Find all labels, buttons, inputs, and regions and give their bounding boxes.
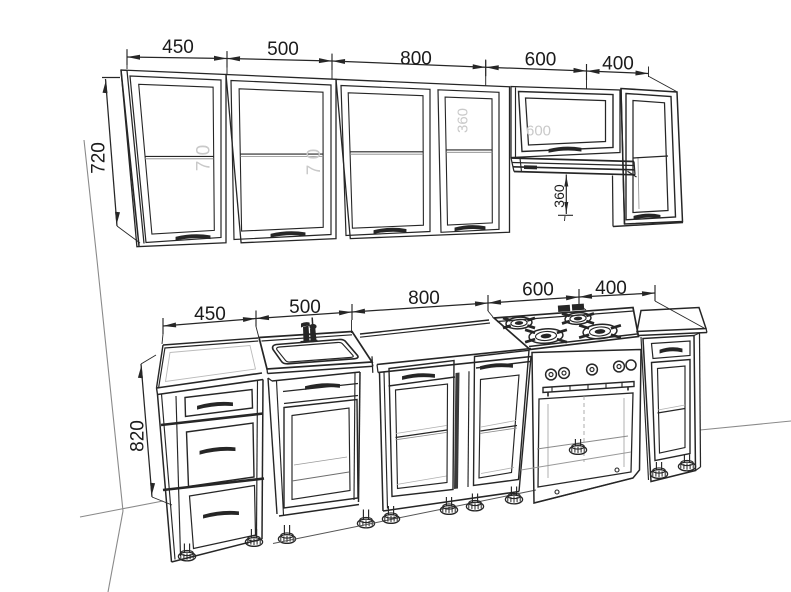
svg-text:600: 600 (526, 123, 551, 140)
svg-text:400: 400 (595, 278, 627, 299)
svg-text:7 0: 7 0 (194, 145, 215, 171)
svg-text:360: 360 (455, 108, 472, 133)
svg-text:7 0: 7 0 (304, 149, 325, 175)
svg-text:500: 500 (267, 39, 299, 60)
svg-text:600: 600 (522, 280, 554, 301)
svg-text:800: 800 (400, 49, 432, 70)
svg-text:800: 800 (408, 288, 440, 309)
svg-text:450: 450 (162, 37, 194, 58)
svg-text:450: 450 (194, 304, 226, 325)
svg-text:600: 600 (525, 50, 557, 71)
svg-text:820: 820 (128, 420, 149, 452)
svg-text:400: 400 (602, 54, 634, 75)
svg-text:720: 720 (89, 142, 110, 174)
svg-text:500: 500 (289, 297, 321, 318)
svg-text:360: 360 (551, 184, 567, 208)
